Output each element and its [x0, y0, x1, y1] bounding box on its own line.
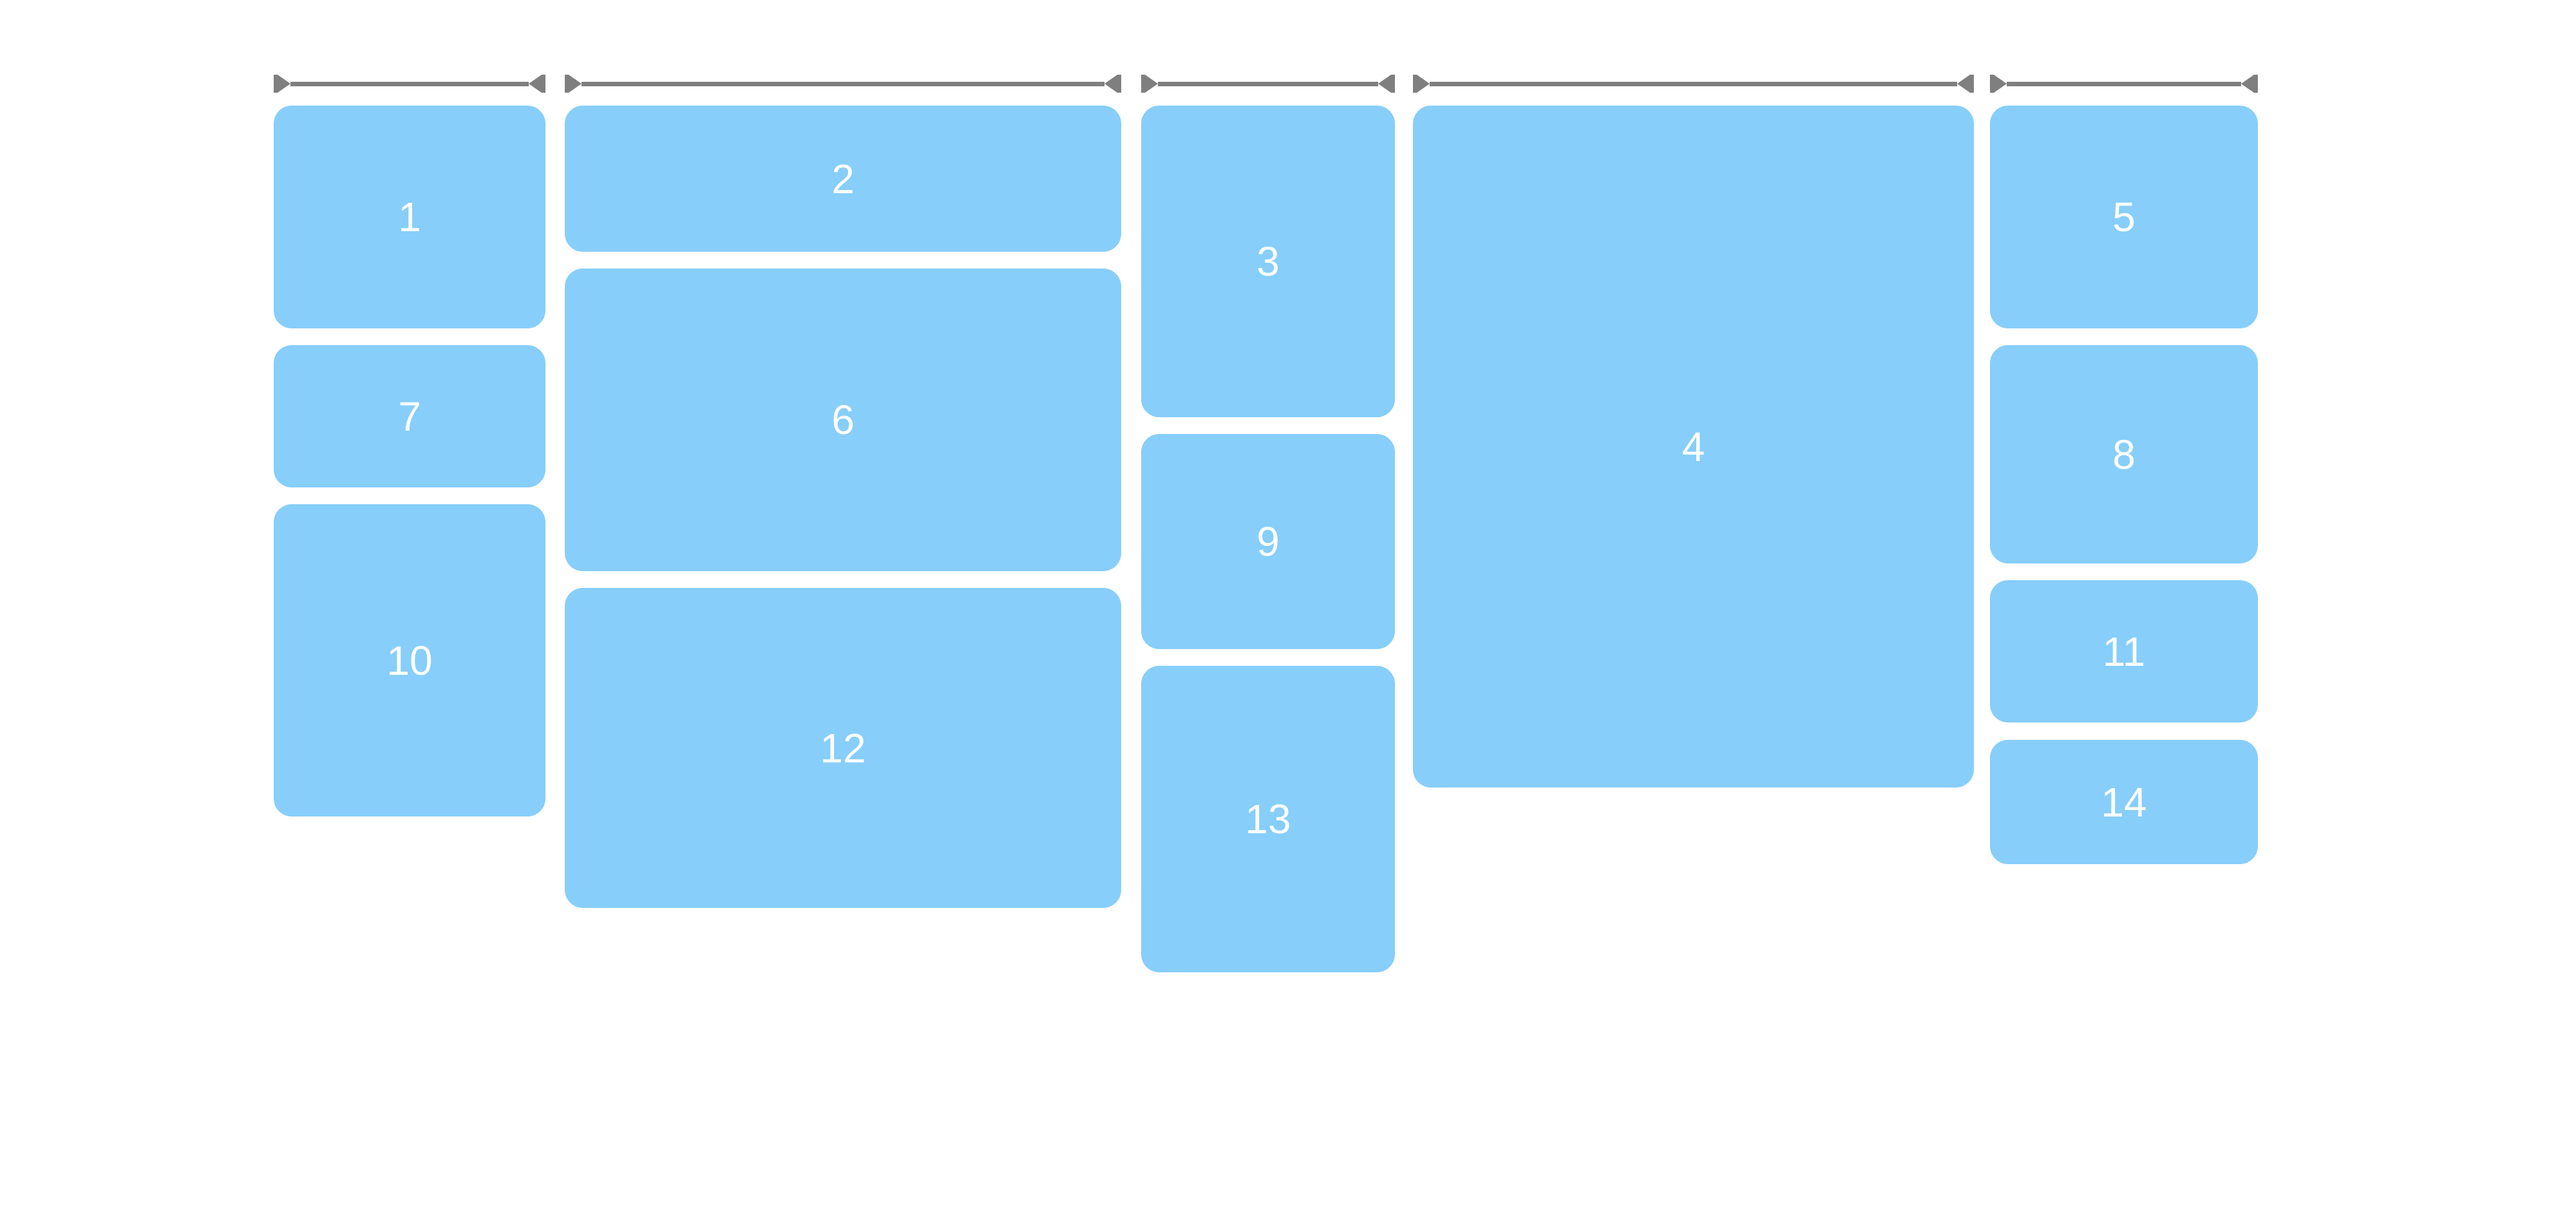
ruler-left-arrow-icon [278, 75, 290, 93]
tile-label: 7 [398, 396, 421, 437]
masonry-tile-11: 11 [1990, 580, 2258, 722]
masonry-tile-2: 2 [565, 106, 1121, 252]
tile-label: 10 [386, 640, 432, 681]
ruler-left-arrow-icon [1994, 75, 2007, 93]
masonry-tile-7: 7 [274, 345, 545, 487]
column-3-width-ruler [1141, 75, 1395, 93]
ruler-right-arrow-icon [1957, 75, 1970, 93]
masonry-tile-1: 1 [274, 106, 545, 328]
tile-label: 4 [1682, 426, 1705, 467]
ruler-left-arrow-icon [569, 75, 582, 93]
masonry-tile-3: 3 [1141, 106, 1395, 417]
ruler-line [1158, 82, 1378, 86]
tile-label: 8 [2112, 434, 2136, 475]
ruler-right-tick [1391, 75, 1395, 93]
ruler-line [2007, 82, 2241, 86]
masonry-tile-12: 12 [565, 588, 1121, 908]
masonry-tile-6: 6 [565, 269, 1121, 571]
ruler-right-tick [542, 75, 545, 93]
masonry-tile-14: 14 [1990, 740, 2258, 864]
ruler-right-arrow-icon [529, 75, 542, 93]
ruler-right-arrow-icon [1378, 75, 1391, 93]
ruler-right-arrow-icon [2241, 75, 2254, 93]
column-1-width-ruler [274, 75, 545, 93]
masonry-tile-10: 10 [274, 504, 545, 816]
ruler-right-tick [2254, 75, 2258, 93]
masonry-tile-9: 9 [1141, 434, 1395, 649]
masonry-layout-canvas: 1 2 3 4 5 6 7 8 9 10 11 12 13 14 [0, 0, 2576, 1208]
tile-label: 13 [1245, 798, 1291, 840]
ruler-line [1430, 82, 1957, 86]
masonry-tile-8: 8 [1990, 345, 2258, 563]
tile-label: 6 [831, 399, 855, 440]
tile-label: 9 [1256, 521, 1280, 562]
tile-label: 12 [820, 728, 866, 769]
ruler-left-arrow-icon [1145, 75, 1158, 93]
ruler-line [582, 82, 1104, 86]
ruler-right-tick [1117, 75, 1121, 93]
tile-label: 11 [2103, 631, 2145, 672]
tile-label: 2 [831, 158, 855, 200]
ruler-left-arrow-icon [1417, 75, 1430, 93]
ruler-right-tick [1970, 75, 1974, 93]
ruler-right-arrow-icon [1104, 75, 1117, 93]
column-4-width-ruler [1413, 75, 1974, 93]
masonry-tile-13: 13 [1141, 666, 1395, 972]
masonry-tile-4: 4 [1413, 106, 1974, 788]
masonry-tile-5: 5 [1990, 106, 2258, 328]
tile-label: 3 [1256, 241, 1280, 282]
column-2-width-ruler [565, 75, 1121, 93]
tile-label: 5 [2112, 196, 2136, 238]
tile-label: 1 [398, 196, 421, 238]
tile-label: 14 [2101, 782, 2146, 823]
column-5-width-ruler [1990, 75, 2258, 93]
ruler-line [290, 82, 529, 86]
